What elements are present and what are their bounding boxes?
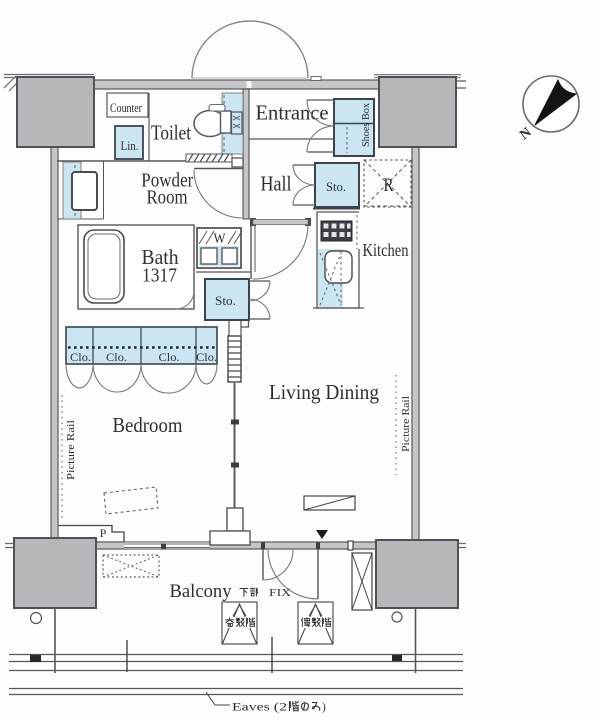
svg-text:Balcony: Balcony [170, 581, 232, 602]
svg-text:Clo.: Clo. [70, 350, 91, 364]
svg-text:Lin.: Lin. [121, 138, 139, 153]
svg-text:Living Dining: Living Dining [269, 380, 379, 404]
svg-text:Clo.: Clo. [159, 350, 180, 364]
svg-text:W: W [214, 231, 227, 247]
svg-text:Hall: Hall [261, 172, 292, 196]
svg-text:Kitchen: Kitchen [363, 240, 409, 260]
svg-text:Sto.: Sto. [326, 179, 346, 194]
svg-text:Shoes Box: Shoes Box [361, 103, 372, 147]
svg-text:Eaves (2: Eaves (2 [232, 702, 287, 714]
svg-text:Counter: Counter [110, 100, 143, 115]
svg-text:1317: 1317 [142, 265, 177, 287]
svg-text:Toilet: Toilet [151, 121, 191, 145]
svg-text:Picture Rail: Picture Rail [65, 420, 77, 480]
svg-text:P: P [100, 526, 107, 540]
svg-text:FIX: FIX [269, 588, 292, 599]
svg-text:Room: Room [147, 187, 188, 209]
svg-text:Clo.: Clo. [106, 350, 127, 364]
svg-text:Picture Rail: Picture Rail [400, 396, 412, 452]
svg-text:Clo.: Clo. [196, 350, 217, 364]
svg-text:R: R [384, 175, 394, 196]
svg-text:): ) [322, 702, 326, 714]
svg-text:Sto.: Sto. [215, 293, 236, 308]
svg-text:Bedroom: Bedroom [113, 413, 183, 437]
